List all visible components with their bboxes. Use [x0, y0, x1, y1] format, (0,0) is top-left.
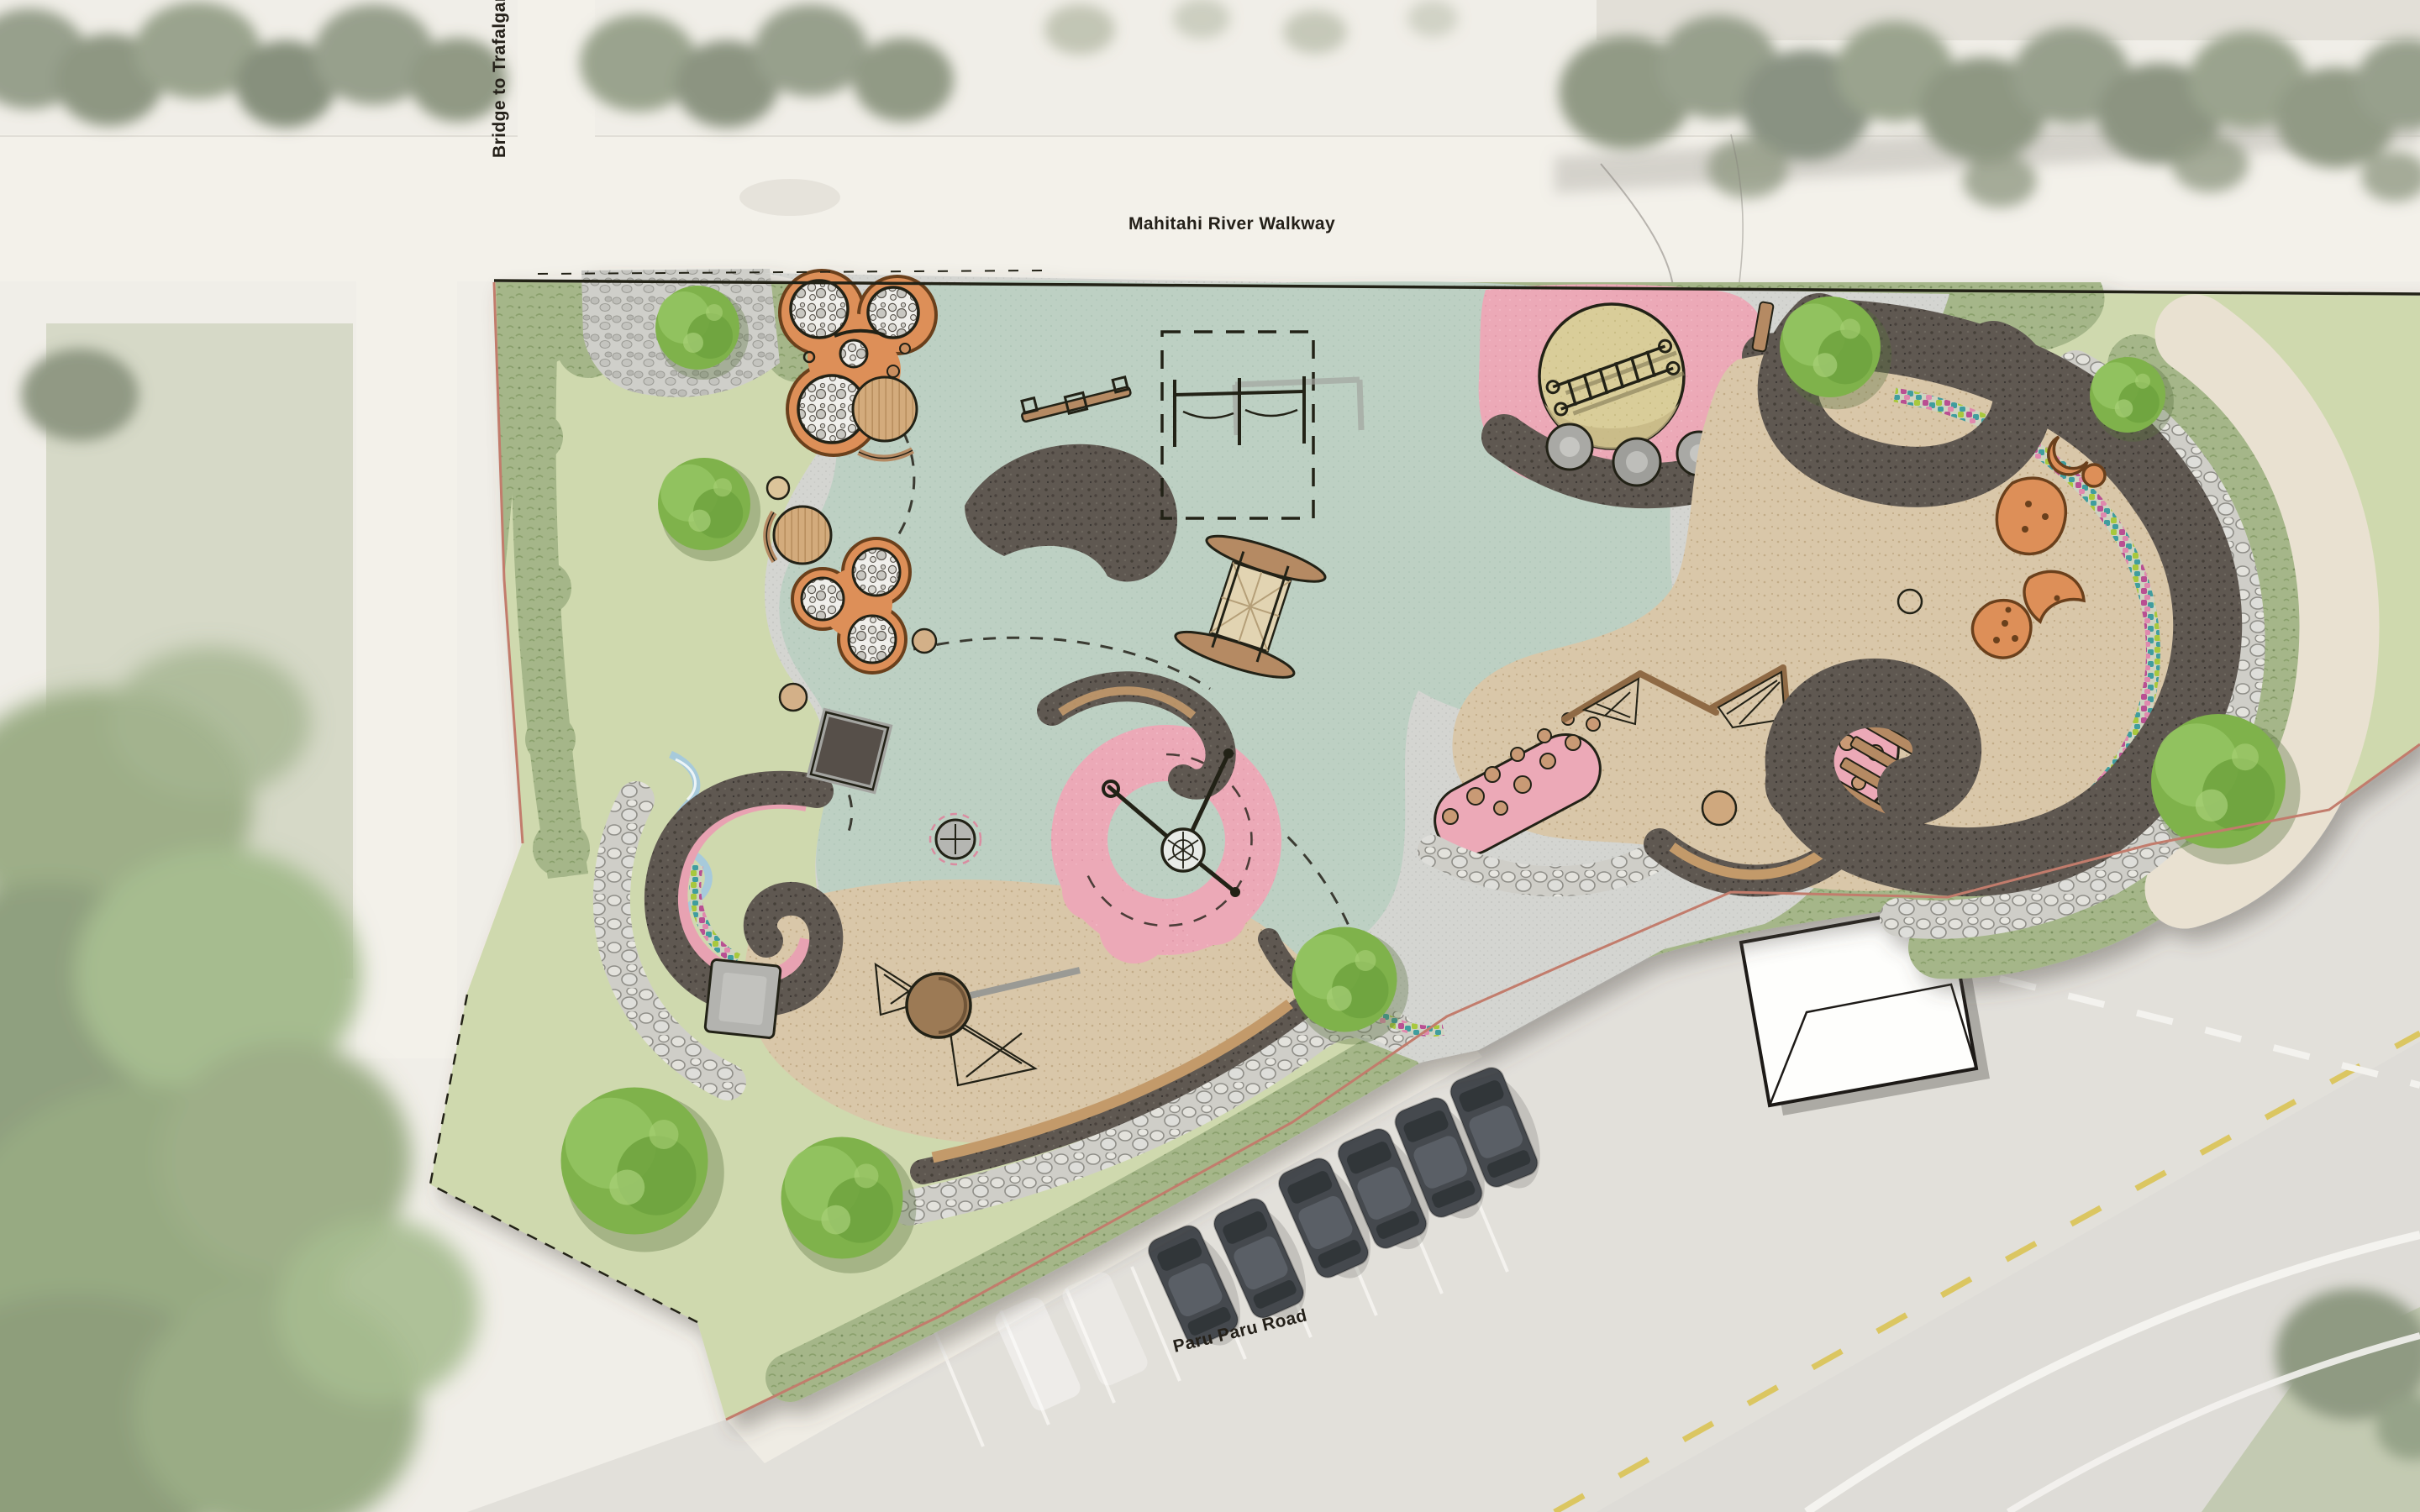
site-plan-image: Bridge to Trafalgar Park Mahitahi River …: [0, 0, 2420, 1512]
label-bridge-path: Bridge to Trafalgar Park: [490, 0, 509, 158]
in-ground-trampoline: [811, 712, 888, 790]
screenshot-root: Bridge to Trafalgar Park Mahitahi River …: [0, 0, 2420, 1512]
label-river-walkway: Mahitahi River Walkway: [1128, 214, 1335, 234]
